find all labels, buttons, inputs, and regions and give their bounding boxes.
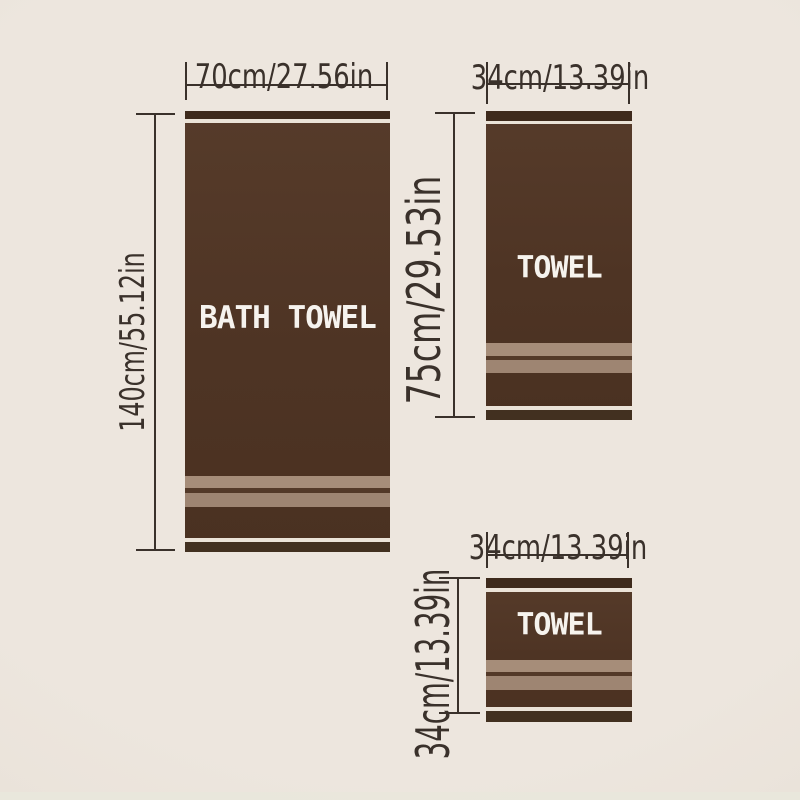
wash-towel-top-border [486, 578, 632, 588]
wash-towel-label: TOWEL [486, 608, 632, 643]
bath-height-dimension-tick-bottom [136, 549, 175, 551]
bath-height-dimension-label: 140cm/55.12in [116, 252, 150, 432]
hand-height-dimension-tick-top [435, 112, 475, 114]
bath-towel-top-cream-line [185, 119, 390, 123]
wash-towel: TOWEL [486, 578, 632, 722]
bath-towel-top-border [185, 111, 390, 119]
bath-width-dimension-tick-left [185, 62, 187, 100]
hand-towel-label: TOWEL [486, 251, 632, 286]
bath-towel-stripe-band [185, 493, 390, 507]
bath-towel: BATH TOWEL [185, 111, 390, 552]
wash-width-dimension-label: 34cm/13.39in [469, 531, 648, 565]
hand-towel-stripe-band [486, 343, 632, 356]
bath-height-dimension-line [154, 114, 156, 551]
wash-towel-top-cream-line [486, 588, 632, 592]
bath-towel-stripe-band [185, 476, 390, 488]
wash-towel-stripe-band [486, 660, 632, 672]
bath-towel-bottom-border [185, 542, 390, 552]
wash-towel-stripe-band [486, 676, 632, 690]
wash-towel-bottom-border [486, 711, 632, 722]
bath-width-dimension-label: 70cm/27.56in [195, 60, 374, 94]
bath-towel-label: BATH TOWEL [185, 300, 390, 336]
hand-towel-stripe-band [486, 360, 632, 373]
hand-height-dimension-line [453, 113, 455, 418]
wash-height-dimension-label: 34cm/13.39in [410, 569, 456, 760]
bath-width-dimension-tick-right [386, 62, 388, 100]
hand-height-dimension-label: 75cm/29.53in [401, 176, 447, 405]
bath-height-dimension-tick-top [136, 113, 175, 115]
photo-bottom-edge [0, 792, 800, 800]
hand-towel: TOWEL [486, 111, 632, 420]
hand-towel-top-cream-line [486, 121, 632, 124]
hand-width-dimension-label: 34cm/13.39in [471, 61, 650, 95]
hand-towel-bottom-border [486, 410, 632, 420]
towel-dimensions-diagram: BATH TOWEL 70cm/27.56in 140cm/55.12in TO… [0, 0, 800, 800]
hand-height-dimension-tick-bottom [435, 416, 475, 418]
hand-towel-top-border [486, 111, 632, 121]
